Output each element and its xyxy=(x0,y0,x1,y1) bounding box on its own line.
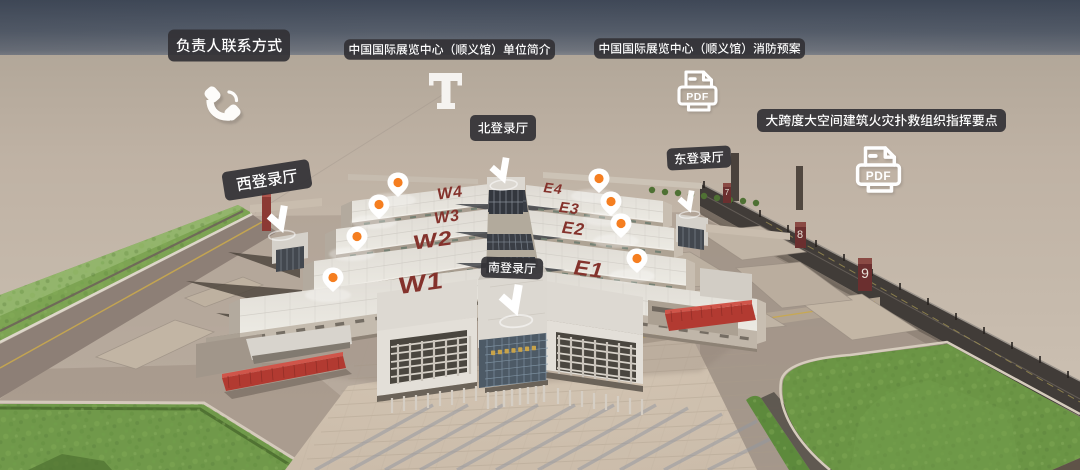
svg-text:7: 7 xyxy=(725,188,730,197)
svg-text:W4: W4 xyxy=(437,182,463,204)
svg-text:PDF: PDF xyxy=(866,169,891,183)
svg-text:PDF: PDF xyxy=(686,91,709,103)
svg-text:W3: W3 xyxy=(434,206,460,228)
svg-text:8: 8 xyxy=(797,229,803,241)
svg-text:9: 9 xyxy=(861,265,869,281)
